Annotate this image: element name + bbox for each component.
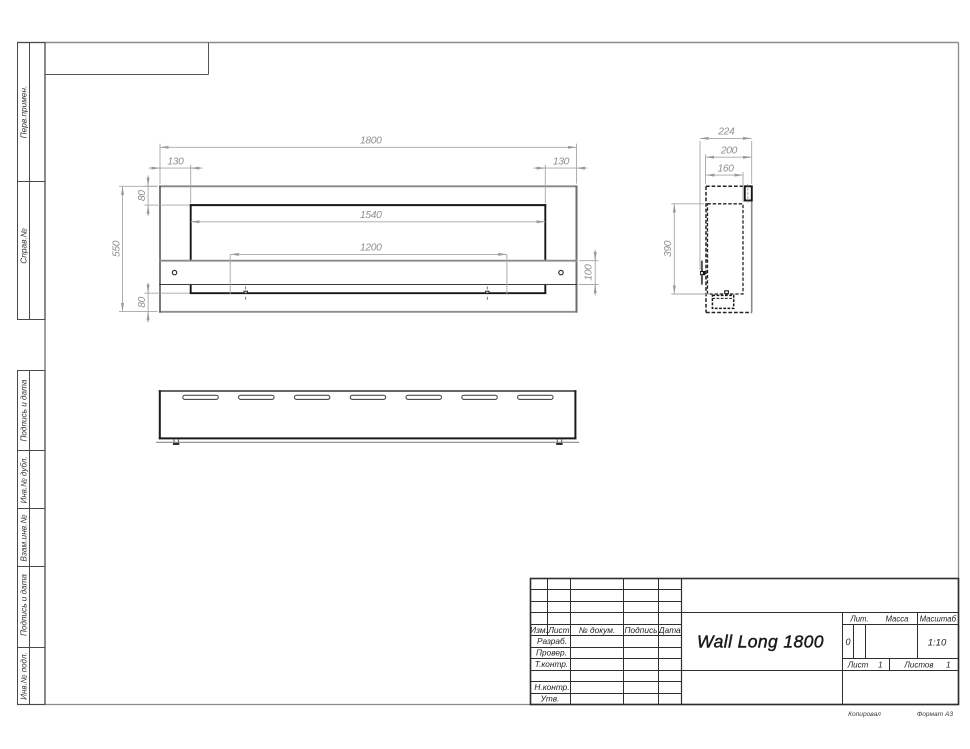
svg-text:Лист: Лист (547, 625, 569, 635)
svg-text:Изм.: Изм. (530, 625, 548, 635)
svg-text:Формат А3: Формат А3 (917, 711, 953, 718)
svg-text:Провер.: Провер. (536, 648, 567, 658)
svg-text:390: 390 (663, 240, 674, 257)
svg-text:Инв.№ дубл.: Инв.№ дубл. (19, 456, 28, 503)
svg-text:Подпись и дата: Подпись и дата (19, 574, 28, 636)
svg-text:130: 130 (167, 156, 184, 167)
svg-text:Перв.примен.: Перв.примен. (18, 86, 28, 139)
svg-text:Разраб.: Разраб. (537, 636, 567, 646)
svg-text:Инв.№ подл.: Инв.№ подл. (19, 652, 28, 699)
svg-text:1:10: 1:10 (928, 637, 947, 648)
svg-text:550: 550 (111, 240, 122, 257)
svg-text:1540: 1540 (360, 210, 382, 221)
svg-text:Масштаб: Масштаб (920, 614, 957, 623)
svg-text:1200: 1200 (360, 243, 382, 254)
svg-text:1: 1 (946, 660, 950, 669)
svg-text:1: 1 (878, 660, 882, 669)
svg-text:Подпись: Подпись (625, 625, 658, 635)
svg-text:Подпись и дата: Подпись и дата (19, 379, 28, 441)
svg-text:Взам.инв.№: Взам.инв.№ (18, 514, 28, 561)
svg-text:Утв.: Утв. (540, 693, 560, 703)
svg-text:1800: 1800 (360, 136, 382, 147)
svg-text:Копировал: Копировал (848, 711, 881, 718)
svg-text:Листов: Листов (903, 660, 933, 669)
svg-text:Н.контр.: Н.контр. (534, 682, 569, 692)
svg-text:80: 80 (137, 190, 148, 201)
svg-text:Справ.№: Справ.№ (18, 228, 28, 263)
svg-text:Wall Long 1800: Wall Long 1800 (697, 632, 824, 652)
svg-text:80: 80 (137, 296, 148, 307)
svg-text:Дата: Дата (658, 625, 681, 635)
svg-text:130: 130 (553, 156, 570, 167)
svg-text:Т.контр.: Т.контр. (535, 659, 568, 669)
svg-text:200: 200 (720, 145, 738, 156)
svg-text:0: 0 (845, 637, 850, 647)
svg-text:Лист: Лист (847, 660, 869, 669)
svg-text:№ докум.: № докум. (579, 625, 616, 635)
svg-text:224: 224 (717, 127, 735, 138)
svg-text:Лит.: Лит. (849, 614, 868, 623)
svg-text:100: 100 (584, 264, 595, 281)
svg-text:160: 160 (718, 163, 735, 174)
svg-text:Масса: Масса (885, 614, 909, 623)
